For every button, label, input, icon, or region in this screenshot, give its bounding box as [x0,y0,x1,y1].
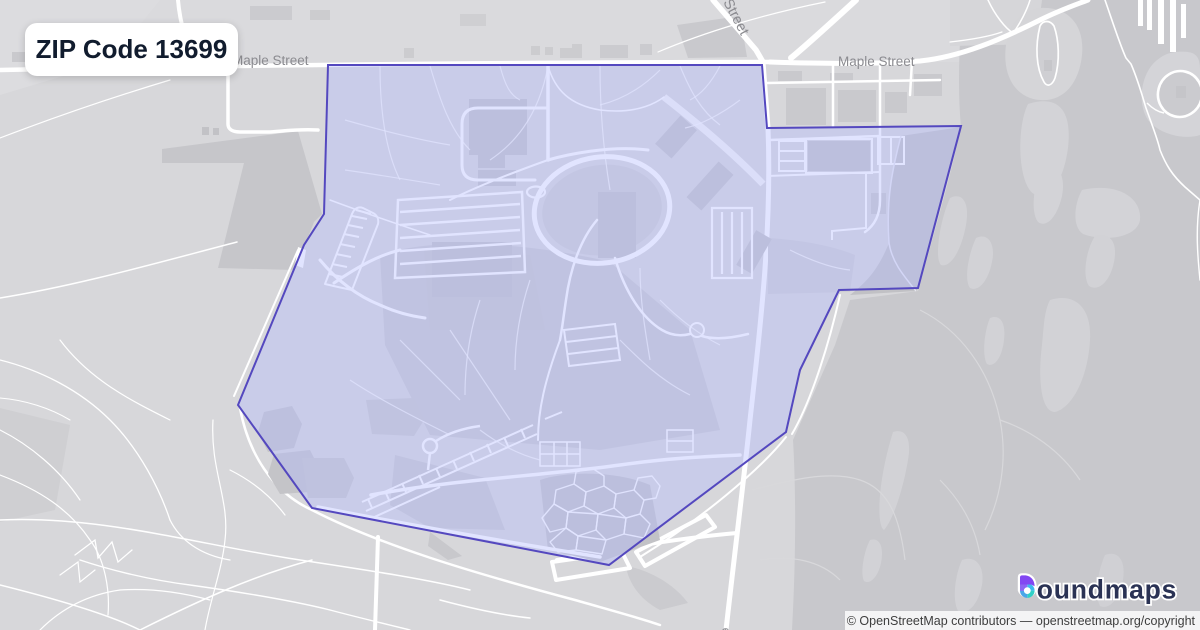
svg-text:Maple Street: Maple Street [838,54,915,69]
svg-text:Maple Street: Maple Street [232,53,309,68]
svg-text:oundmaps: oundmaps [1037,574,1177,604]
